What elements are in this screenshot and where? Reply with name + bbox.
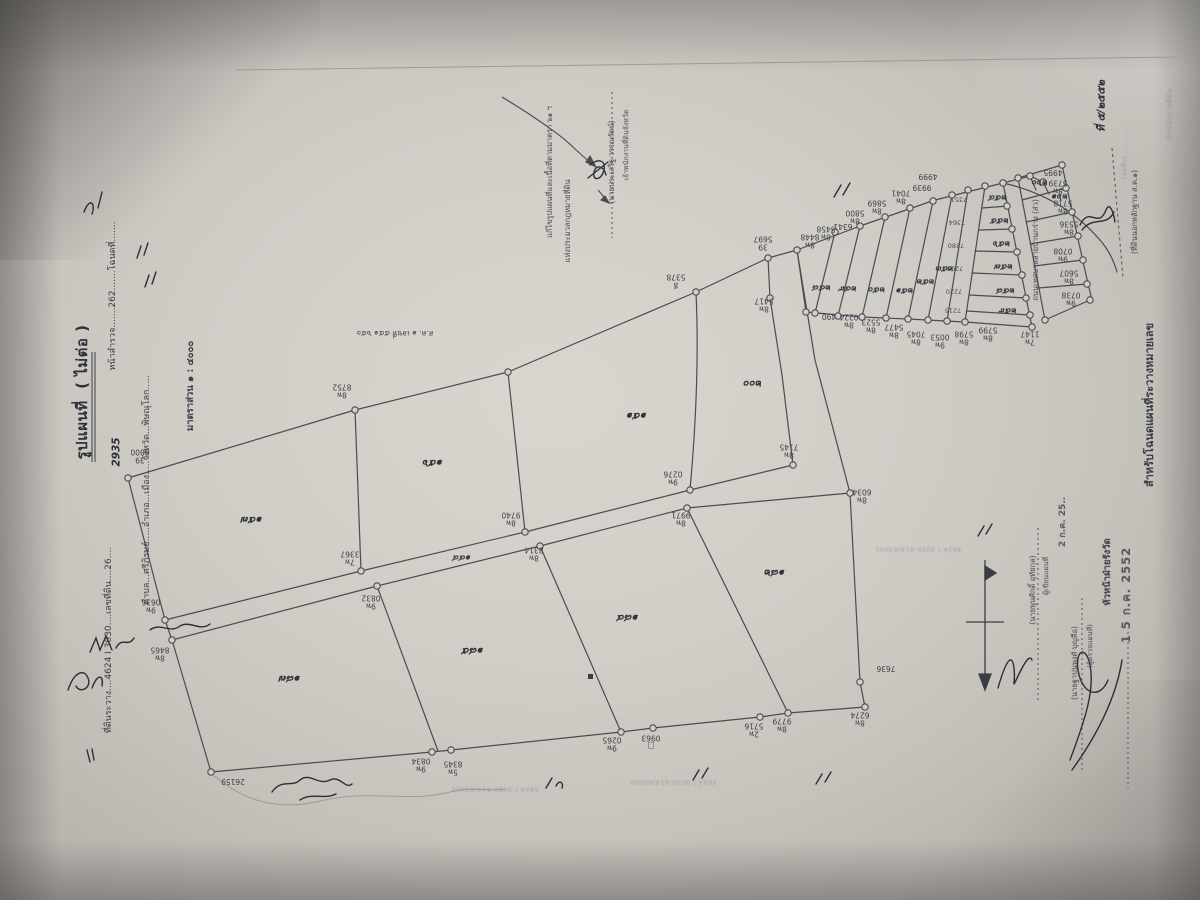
vertex-label: 8พ 6034 — [852, 489, 871, 504]
strip-no: ๒๖๐ — [1032, 178, 1048, 187]
scanned-survey-document: รูปแผนที่ ( ไม่ต่อ )ที่ดินระวาง....4624 … — [0, 0, 1200, 900]
vertex-label: 8พ 5800 — [845, 210, 864, 225]
vertex-label: 9พ 0708 — [1053, 248, 1072, 263]
hand-check-marks-1 — [978, 524, 992, 536]
hand-scribble-bottom-3 — [816, 772, 831, 784]
vertex-label: 8พ 9740 — [501, 512, 520, 527]
vertex-label: 2พ 5716 — [744, 723, 763, 738]
boundary-marker-circle — [1014, 249, 1020, 255]
strip-divider — [908, 201, 933, 319]
hand-check-marks-3 — [137, 243, 156, 287]
hand-scribble-left-2 — [68, 673, 102, 690]
boundary-marker-circle — [1023, 295, 1029, 301]
corner-note-hand: ที่ ๕/๒๕๕๒ — [1097, 80, 1108, 132]
top-rule-line — [235, 57, 1175, 70]
vertex-label: 7220 — [946, 288, 963, 295]
boundary-marker-circle — [965, 187, 971, 193]
boundary-marker-circle — [1027, 312, 1033, 318]
boundary-marker-square — [588, 674, 593, 679]
sign1-name: (นายพูนศักดิ์ อุทัยกุล) — [1029, 555, 1037, 624]
sheet-line: ที่ดินระวาง....4624 I 3030....เลขที่ดิน.… — [104, 547, 114, 733]
vertex-label: ลี 5378 — [666, 274, 685, 289]
strip-divider — [969, 295, 1026, 298]
vertex-label: 8พ 9971 — [671, 512, 690, 527]
ref-stamp-3: 4624 I 3030-614/63001 — [629, 779, 716, 786]
sign2-role: (ผู้ตรวจแผนที่) — [1087, 624, 1095, 668]
boundary-marker-circle — [765, 255, 771, 261]
boundary-marker-circle — [374, 583, 380, 589]
hand-mark-top-left — [84, 192, 102, 214]
vertex-label: 8พ 7045 — [906, 331, 925, 346]
boundary-marker-circle — [358, 568, 364, 574]
right-edge-text: สำหรับโฉนดแผนที่ระวางหมายเลข — [1144, 323, 1156, 487]
vertex-label: 8พ 5417 — [754, 298, 773, 313]
survey-number-hand: 2935 — [112, 437, 123, 466]
vertex-label: 8พ 6274 — [850, 712, 869, 727]
vertex-label: 8พ 5536 — [1059, 221, 1078, 236]
strip-divider — [838, 226, 860, 316]
road-name-hand: ๑๔๔ — [453, 553, 471, 562]
boundary-marker-circle — [883, 315, 889, 321]
boundary-marker-circle — [125, 475, 131, 481]
boundary-marker-circle — [757, 714, 763, 720]
title: รูปแผนที่ ( ไม่ต่อ ) — [74, 325, 90, 460]
strip-no: ๒๕๙ — [999, 306, 1017, 315]
boundary-marker-circle — [352, 407, 358, 413]
vertex-label: 7636 — [876, 664, 895, 672]
parcel-divider — [377, 586, 438, 751]
boundary-marker-circle — [930, 198, 936, 204]
boundary-marker-circle — [803, 309, 809, 315]
road-ns-west — [768, 258, 793, 465]
boundary-marker-circle — [208, 769, 214, 775]
vertex-label: 8พ 9779 — [772, 718, 791, 733]
vertex-label: 9พ 0053 — [930, 334, 949, 349]
vertex-label: 8พ 7145 — [779, 444, 798, 459]
parcel-divider — [690, 292, 697, 490]
vertex-label: 7พ 3367 — [340, 551, 359, 566]
boundary-marker-circle — [1087, 297, 1093, 303]
hand-check-marks-2 — [834, 183, 850, 197]
boundary-marker-circle — [1000, 180, 1006, 186]
date-stamp-2: 1 5 ก.ค. 2552 — [1120, 547, 1132, 643]
title-underline — [92, 352, 95, 462]
vertex-label: 7280 — [948, 242, 965, 249]
boundary-marker-circle — [618, 729, 624, 735]
parcel-divider — [540, 546, 621, 732]
amendment-line-1: แก้ไขรูปแผนที่และเนื้อที่ตามมาตรา ๖๑ ฯ — [546, 106, 554, 238]
ref-stamp-1: 4624 I 3030-614/63001 — [874, 546, 961, 553]
boundary-marker-circle — [1042, 317, 1048, 323]
strip-no: ๒๕๔ — [989, 193, 1007, 202]
parcel-no: ๑๘๔ — [617, 612, 639, 622]
sor-kor-label: ส.ค. ๑ เลขที่ ๕๕๑ ๖๕๐ — [356, 329, 433, 337]
fan-right-group-west — [965, 186, 985, 322]
vertex-label: 8พ 5739 — [1048, 180, 1067, 195]
boundary-marker-circle — [169, 637, 175, 643]
vertex-label: 7พ 1147 — [1020, 331, 1039, 346]
vertex-label: 8พ 7041 — [891, 190, 910, 205]
vertex-label: 9พ 0265 — [602, 737, 621, 752]
boundary-left — [128, 478, 211, 772]
boundary-marker-circle — [429, 749, 435, 755]
vertex-label: 8พ 5869 — [867, 200, 886, 215]
vertex-label: 8พ 5799 — [978, 327, 997, 342]
amendment-signer: (นายประเสริฐ วรรณรัตน์) — [608, 120, 616, 203]
boundary-marker-circle — [925, 317, 931, 323]
boundary-marker-circle — [882, 214, 888, 220]
boundary-marker-circle — [1084, 281, 1090, 287]
vertex-label: 9พ 0738 — [1061, 292, 1080, 307]
strip-no: ๒๕๕ — [991, 216, 1009, 225]
parcel-divider — [508, 372, 525, 532]
sign3-role: หัวหน้าฝ่ายรังวัด — [1103, 538, 1113, 605]
boundary-marker-circle — [785, 710, 791, 716]
vertex-label: 7215 — [945, 307, 962, 314]
boundary-marker-circle — [905, 316, 911, 322]
vertex-label: □ 0963 — [641, 735, 660, 750]
parcel-no: ๑๘๗ — [279, 673, 301, 683]
sign2-name: (นายฐาปนพงศ์ บุญลือ) — [1071, 626, 1079, 700]
vertex-label: 39 8800 — [130, 449, 149, 464]
boundary-marker-circle — [962, 319, 968, 325]
boundary-marker-circle — [448, 747, 454, 753]
boundary-marker-circle — [522, 529, 528, 535]
vertex-label: 9พ 0834 — [411, 758, 430, 773]
strip-divider — [928, 195, 952, 320]
vertex-label: 8พ 5523 — [861, 319, 880, 334]
strip-divider — [972, 273, 1022, 275]
boundary-marker-circle — [687, 487, 693, 493]
corner-faint-2: เจ้าพนักงานที่ดิน — [1167, 89, 1174, 142]
hand-scribble-bottom-left — [272, 777, 352, 800]
boundary-marker-circle — [982, 183, 988, 189]
boundary-bottom — [211, 707, 865, 772]
amendment-line-2: แห่งประมวลกฎหมายที่ดิน — [564, 179, 572, 262]
boundary-marker-circle — [505, 369, 511, 375]
strip-no: ๒๕๗ — [995, 262, 1013, 271]
vertex-label: 9พ 0636 — [141, 599, 160, 614]
parcel-no: ๑๕๑ — [627, 410, 647, 420]
parcel-no: ๒๐๐ — [744, 378, 763, 388]
strip-no: ๒๕๑ — [896, 286, 913, 295]
vertex-label: 26159 — [221, 777, 245, 785]
amendment-ink-mark — [588, 161, 608, 179]
boundary-marker-circle — [1015, 175, 1021, 181]
vertex-label: 8พ 8752 — [332, 384, 351, 399]
strip-no: ๒๔๘ — [813, 283, 832, 292]
vertex-label: 490 — [822, 312, 836, 320]
boundary-marker-circle — [650, 725, 656, 731]
hand-scribble-bottom-1 — [546, 778, 563, 788]
boundary-marker-circle — [794, 247, 800, 253]
strip-no: ๒๔๙ — [839, 284, 857, 293]
strip-divider — [975, 251, 1017, 252]
vertex-label: 8พ 8465 — [150, 647, 169, 662]
corner-faint-1: (ลงชื่อ)............ — [1122, 125, 1129, 179]
parcel-no: ๑๘๕ — [462, 645, 484, 655]
vertex-label: 5พ 8345 — [443, 761, 462, 776]
signature-1 — [998, 658, 1032, 688]
vertex-label: 8พ 5718 — [1053, 200, 1072, 215]
vertex-label: 9พ 0276 — [663, 471, 682, 486]
parcel-no: ๑๕๖ — [423, 457, 443, 467]
parcel-divider — [355, 410, 361, 571]
scale-line: มาตราส่วน ๑ : ๔๐๐๐ — [186, 341, 196, 431]
strip-divider — [979, 229, 1012, 230]
vertex-label: 39 5697 — [753, 236, 772, 251]
vertex-label: 8พ 5798 — [954, 331, 973, 346]
vertex-label: 7351 — [951, 196, 968, 203]
strip-no: ๒๕๘ — [997, 286, 1016, 295]
boundary-right — [850, 493, 865, 707]
road-main-top — [165, 465, 793, 620]
strip-divider — [862, 217, 885, 317]
hand-tick-left — [87, 749, 94, 762]
vertex-label: 4995 — [1043, 168, 1062, 176]
ink-scribble-top-right — [1080, 207, 1115, 230]
boundary-marker-circle — [907, 205, 913, 211]
boundary-marker-circle — [1009, 226, 1015, 232]
admin-line: ตำบล...ศรีภิรมย์.....อำเภอ...เมือง.....จ… — [142, 375, 152, 605]
road-right-label: ถนนเทศบาลสายบ้านกร่าง (ส่ว) — [1032, 199, 1040, 300]
boundary-marker-circle — [1080, 257, 1086, 263]
strip-divider — [886, 208, 910, 318]
dashed-note: (ที่ดินนอกหลักฐาน ส.ค.๑) — [1131, 170, 1139, 254]
boundary-marker-circle — [862, 704, 868, 710]
parcel-no: ๑๕๗ — [241, 514, 262, 524]
boundary-marker-circle — [162, 617, 168, 623]
boundary-marker-circle — [790, 462, 796, 468]
date-stamp-1: 2 ก.ค. 25.. — [1058, 497, 1068, 547]
vertex-label: 9พ 0832 — [361, 595, 380, 610]
vertex-label: 7203 — [947, 265, 964, 272]
boundary-marker-circle — [857, 679, 863, 685]
vertex-label: 9939 — [912, 183, 931, 191]
amendment-role: เจ้าพนักงานที่ดินจังหวัด — [623, 110, 631, 181]
sign1-role: ผู้เขียนแผนที่ — [1043, 557, 1051, 595]
vertex-label: 8พ 5477 — [884, 324, 903, 339]
parcel-divider — [687, 508, 788, 713]
boundary-marker-circle — [944, 318, 950, 324]
survey-line: หน้าสำรวจ.......262.......โฉนดที่....... — [108, 222, 118, 371]
vertex-label: 8พ 5607 — [1059, 270, 1078, 285]
strip-no: ๒๕๐ — [868, 285, 885, 294]
strip-no: ๒๕๖ — [993, 239, 1010, 248]
vertex-label: 4999 — [918, 172, 937, 180]
boundary-marker-circle — [1004, 203, 1010, 209]
boundary-marker-circle — [812, 310, 818, 316]
vertex-label: 7364 — [949, 219, 966, 226]
strip-divider — [947, 190, 968, 321]
parcel-no: ๑๘๒ — [765, 567, 786, 577]
hand-flourish-sheet-line — [150, 624, 210, 630]
vertex-label: 8พ 8314 — [524, 547, 543, 562]
north-arrow — [966, 560, 1004, 690]
strip-divider — [1038, 284, 1087, 288]
vertex-label: 8พ 0224 — [839, 314, 858, 329]
boundary-marker-circle — [693, 289, 699, 295]
fan-left-edge — [797, 250, 806, 312]
ref-stamp-2: 4624 I 3030-614/63001 — [451, 786, 538, 793]
boundary-marker-circle — [1019, 272, 1025, 278]
survey-map-drawing — [0, 0, 1200, 900]
strip-no: ๒๕๒ — [917, 277, 935, 286]
